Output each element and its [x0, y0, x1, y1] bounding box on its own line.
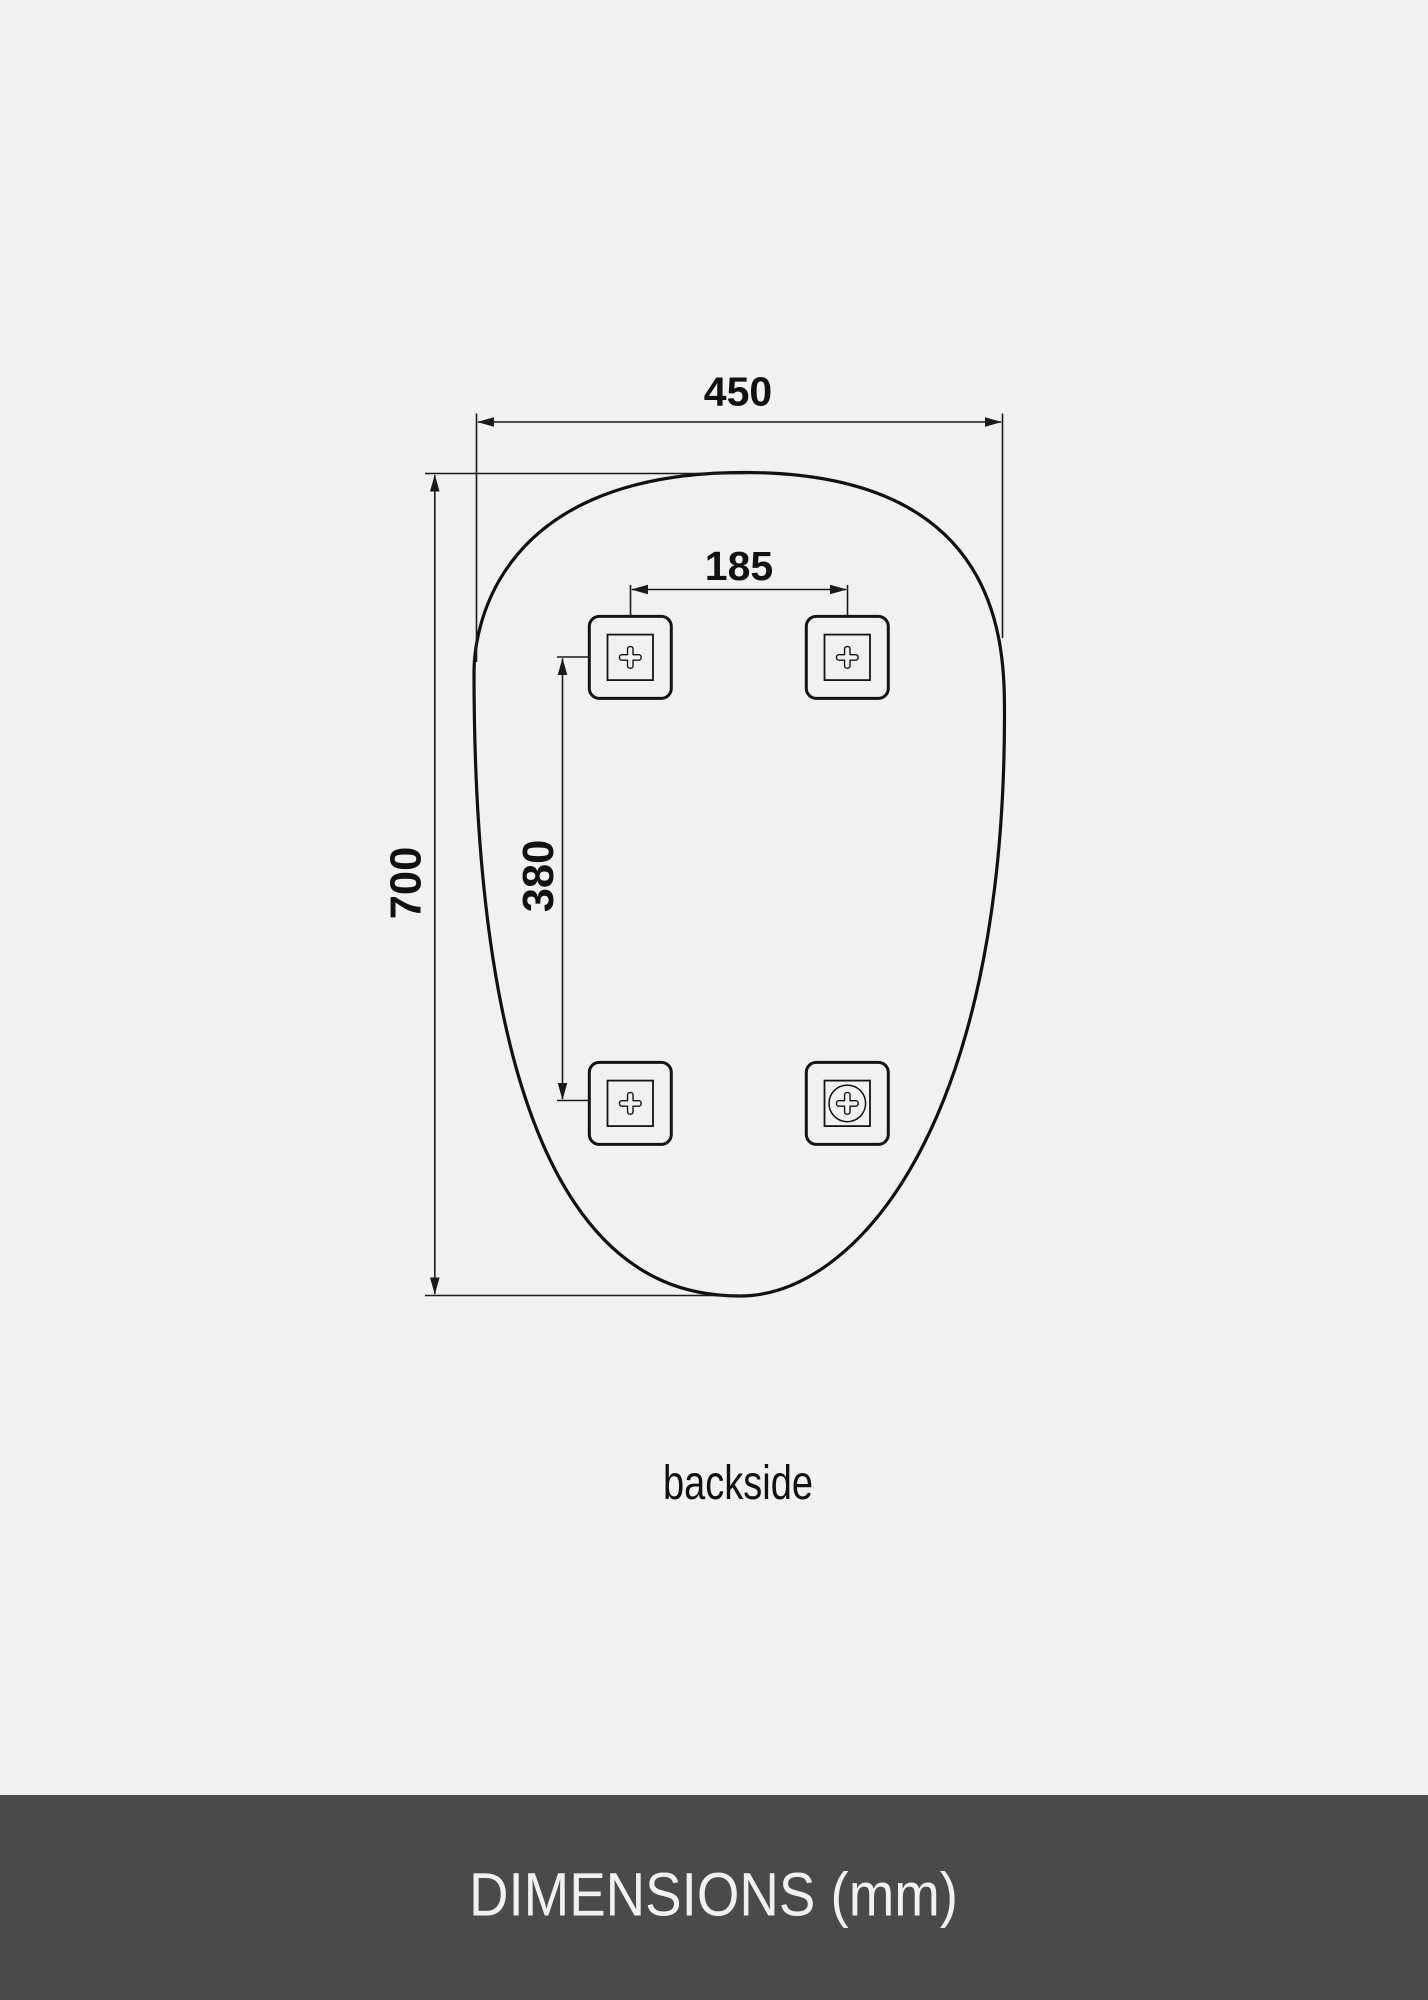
- svg-text:700: 700: [383, 847, 431, 920]
- svg-text:DIMENSIONS (mm): DIMENSIONS (mm): [469, 1861, 958, 1929]
- svg-text:185: 185: [705, 543, 773, 589]
- svg-text:450: 450: [704, 369, 772, 415]
- svg-text:380: 380: [515, 840, 563, 913]
- svg-text:backside: backside: [663, 1457, 813, 1510]
